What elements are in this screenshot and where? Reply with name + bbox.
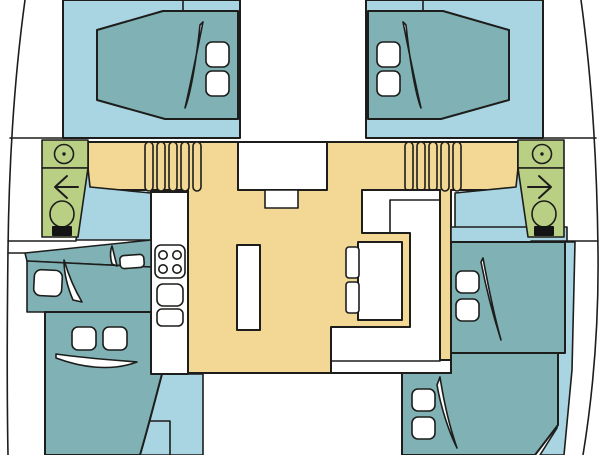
stair-step [193,142,201,191]
starboard-stairs [405,142,461,191]
floor-plan-svg [0,0,606,455]
seat [346,282,359,313]
pillow [412,389,435,411]
burner-icon [159,251,167,259]
salon-table [358,242,402,320]
sink [157,284,183,306]
starboard-hull-outline [581,0,598,455]
galley-island [237,245,260,330]
burner-icon [173,265,181,273]
pillow [456,271,479,293]
forward-starboard-cabin [366,0,543,138]
pillow [120,254,145,269]
port-hull-outline [7,0,25,455]
stair-step [181,142,189,191]
galley-counter [151,192,188,374]
pillow [412,417,435,439]
double-bed [451,242,565,353]
toilet-tank-icon [534,226,554,236]
stair-step [429,142,437,191]
pillow [377,42,400,67]
stair-step [453,142,461,191]
mid-port-berths [25,240,151,312]
pillow [456,299,479,321]
floor-plan [0,0,606,455]
port-stairs [145,142,201,191]
pillow [206,71,229,96]
washbasin-drain-icon [540,152,543,155]
stair-step [405,142,413,191]
pillow [103,327,127,350]
pillow [33,269,62,296]
stair-step [145,142,153,191]
washbasin-drain-icon [62,152,65,155]
sink [157,309,183,326]
forward-port-cabin [63,0,240,138]
stair-step [441,142,449,191]
stair-step [417,142,425,191]
pillow [377,71,400,96]
stove [155,245,185,278]
mid-starboard-cabin [451,242,565,353]
burner-icon [173,251,181,259]
console-step [265,190,298,208]
stair-step [169,142,177,191]
seat [346,247,359,278]
console-cabinet [238,142,327,190]
pillow [206,42,229,67]
stair-step [157,142,165,191]
aft-port-cabin [45,312,162,455]
burner-icon [159,265,167,273]
pillow [72,327,96,350]
toilet-tank-icon [52,226,72,236]
